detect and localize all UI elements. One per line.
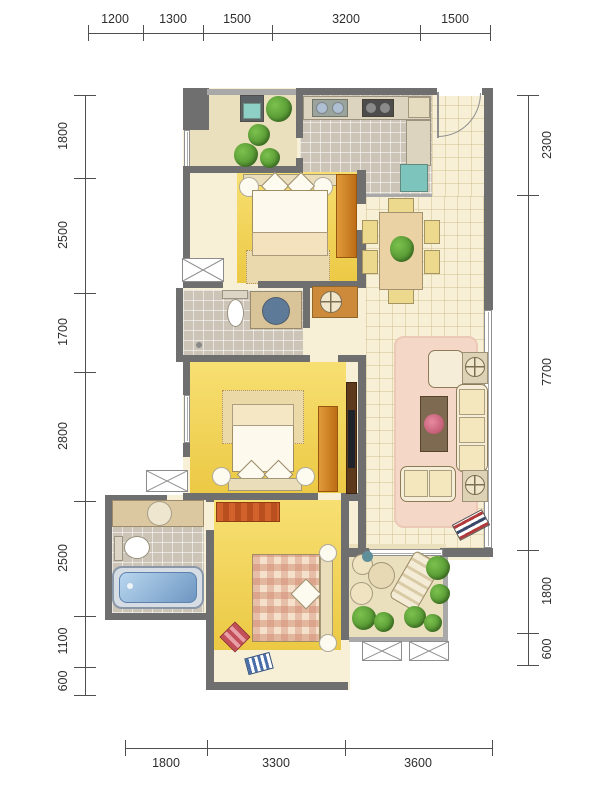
left-dim-label-0: 1800 xyxy=(56,122,70,150)
left-dim-tick-6 xyxy=(74,667,96,668)
bottom-dim-label-2: 3600 xyxy=(404,756,432,770)
left-dim-tick-7 xyxy=(74,695,96,696)
right-dim-tick-0 xyxy=(517,95,539,96)
bottom-dim-tick-0 xyxy=(125,740,126,756)
left-dimension-line xyxy=(85,95,86,695)
left-dim-label-1: 2500 xyxy=(56,221,70,249)
right-dim-label-1: 7700 xyxy=(540,358,554,386)
bottom-dim-label-0: 1800 xyxy=(152,756,180,770)
top-dim-label-1: 1300 xyxy=(159,12,187,26)
top-dim-tick-1 xyxy=(143,25,144,41)
top-dim-tick-4 xyxy=(420,25,421,41)
left-dim-tick-3 xyxy=(74,372,96,373)
top-dim-tick-3 xyxy=(272,25,273,41)
top-dim-label-2: 1500 xyxy=(223,12,251,26)
left-dim-tick-2 xyxy=(74,293,96,294)
top-dim-label-3: 3200 xyxy=(332,12,360,26)
top-dim-tick-0 xyxy=(88,25,89,41)
bottom-dim-tick-1 xyxy=(207,740,208,756)
right-dimension-line xyxy=(528,95,529,665)
left-dim-label-2: 1700 xyxy=(56,318,70,346)
right-dim-tick-3 xyxy=(517,633,539,634)
left-dim-label-5: 1100 xyxy=(56,628,70,655)
right-dim-tick-2 xyxy=(517,550,539,551)
right-dim-tick-4 xyxy=(517,665,539,666)
left-dim-tick-5 xyxy=(74,616,96,617)
left-dim-tick-4 xyxy=(74,501,96,502)
top-dim-label-0: 1200 xyxy=(101,12,129,26)
bottom-dim-label-1: 3300 xyxy=(262,756,290,770)
dimension-annotations: 1200130015003200150018003300360018002500… xyxy=(0,0,600,800)
right-dim-label-2: 1800 xyxy=(540,577,554,605)
left-dim-tick-1 xyxy=(74,178,96,179)
bottom-dim-tick-3 xyxy=(492,740,493,756)
bottom-dimension-line xyxy=(125,748,492,749)
right-dim-tick-1 xyxy=(517,195,539,196)
left-dim-tick-0 xyxy=(74,95,96,96)
bottom-dim-tick-2 xyxy=(345,740,346,756)
right-dim-label-0: 2300 xyxy=(540,131,554,159)
floor-plan-page: 1200130015003200150018003300360018002500… xyxy=(0,0,600,800)
left-dim-label-3: 2800 xyxy=(56,422,70,450)
top-dim-tick-2 xyxy=(203,25,204,41)
left-dim-label-6: 600 xyxy=(56,671,70,692)
top-dim-label-4: 1500 xyxy=(441,12,469,26)
left-dim-label-4: 2500 xyxy=(56,544,70,572)
top-dimension-line xyxy=(88,33,490,34)
top-dim-tick-5 xyxy=(490,25,491,41)
right-dim-label-3: 600 xyxy=(540,639,554,660)
